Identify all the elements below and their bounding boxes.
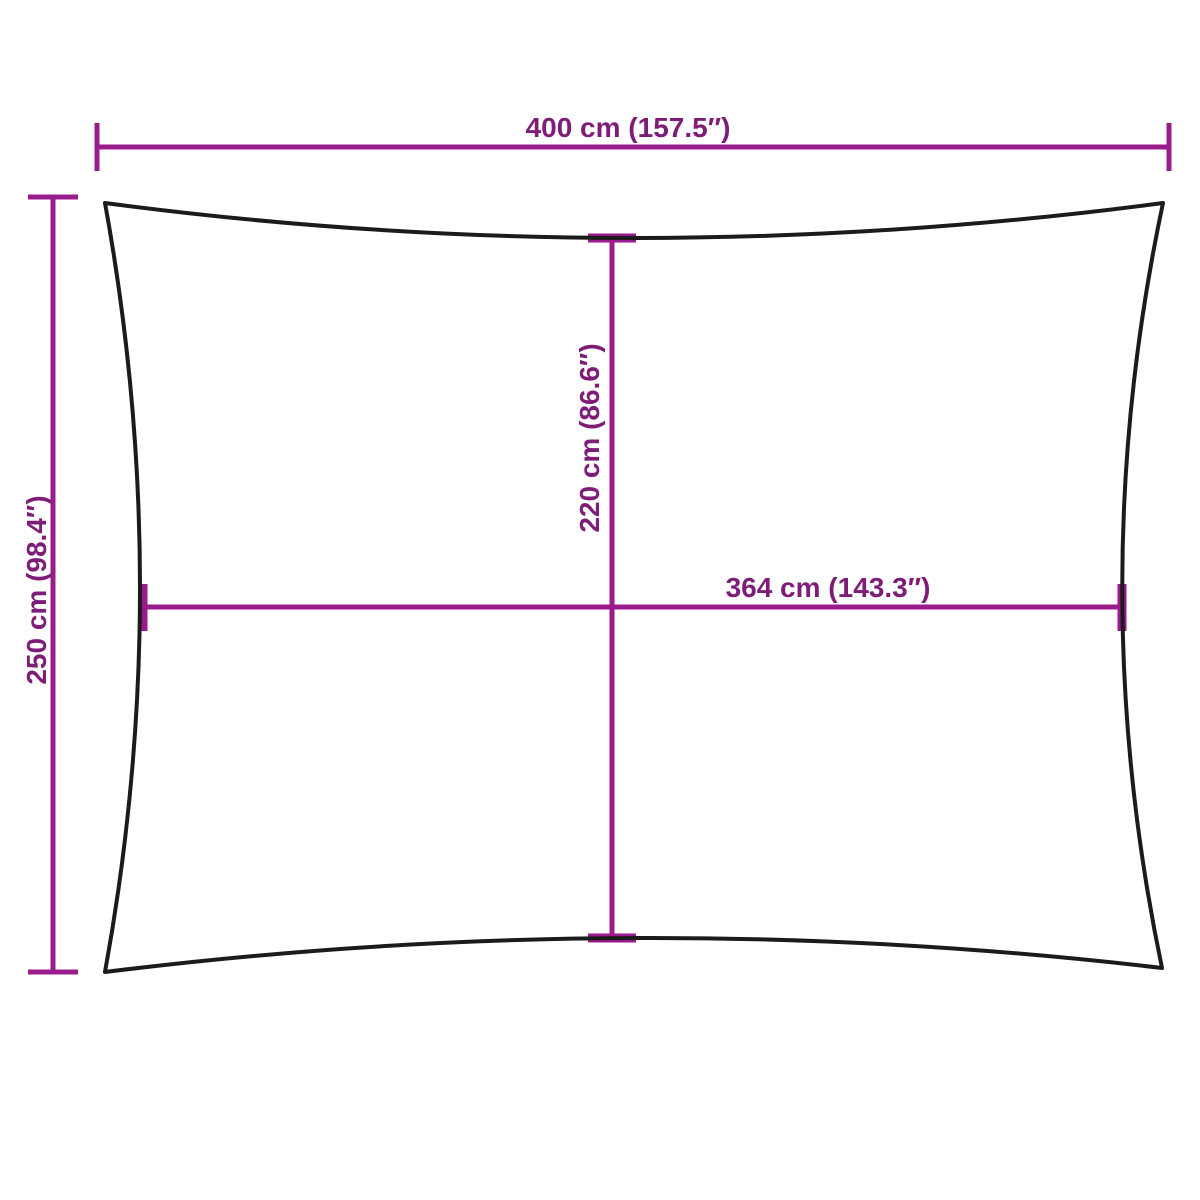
inner-width-label: 364 cm (143.3″)	[726, 572, 931, 603]
inner-width-dimension: 364 cm (143.3″)	[143, 572, 1122, 631]
overall-width-dimension: 400 cm (157.5″)	[97, 112, 1169, 171]
overall-height-dimension: 250 cm (98.4″)	[21, 197, 78, 972]
sail-dimension-diagram: 400 cm (157.5″) 250 cm (98.4″) 220 cm (8…	[0, 0, 1200, 1200]
inner-height-dimension: 220 cm (86.6″)	[574, 238, 636, 938]
sail-outline	[105, 203, 1163, 972]
overall-width-label: 400 cm (157.5″)	[526, 112, 731, 143]
inner-height-label: 220 cm (86.6″)	[574, 343, 605, 532]
overall-height-label: 250 cm (98.4″)	[21, 495, 52, 684]
